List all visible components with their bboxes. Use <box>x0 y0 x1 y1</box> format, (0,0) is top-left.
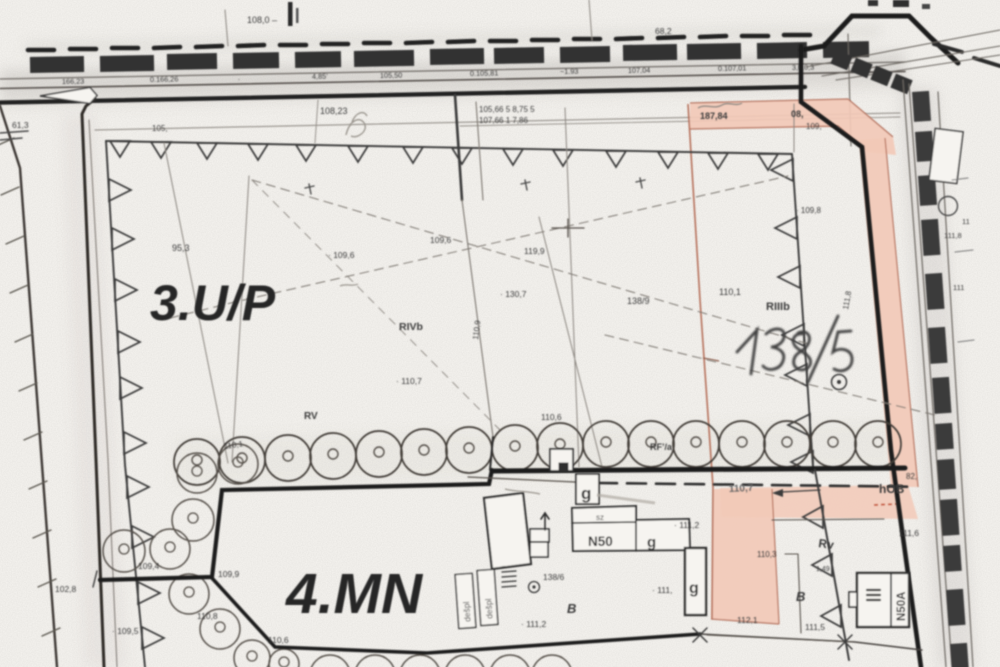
svg-text:109,6: 109,6 <box>430 235 452 245</box>
svg-text:109,9: 109,9 <box>218 569 240 579</box>
svg-text:N50: N50 <box>588 534 613 549</box>
svg-text:105,66 5 8,75 5: 105,66 5 8,75 5 <box>479 105 535 114</box>
svg-text:111,5: 111,5 <box>805 622 825 632</box>
svg-text:111: 111 <box>953 283 964 292</box>
svg-text:Rv: Rv <box>818 536 835 552</box>
svg-text:4.MN: 4.MN <box>285 562 424 626</box>
svg-text:110,1: 110,1 <box>719 287 741 297</box>
svg-text:· 110,7: · 110,7 <box>396 376 422 386</box>
svg-text:61,3: 61,3 <box>12 120 29 130</box>
svg-text:· 111,: · 111, <box>652 585 672 595</box>
svg-text:68,2: 68,2 <box>655 26 672 36</box>
svg-text:110,7: 110,7 <box>729 483 754 495</box>
svg-text:0.166,26: 0.166,26 <box>150 74 179 84</box>
svg-text:187,84: 187,84 <box>700 111 728 121</box>
svg-text:110,8: 110,8 <box>197 611 218 621</box>
svg-text:· 130,7: · 130,7 <box>500 289 527 299</box>
svg-text:0.105,81: 0.105,81 <box>470 68 499 78</box>
svg-text:11: 11 <box>962 217 970 226</box>
svg-text:.: . <box>238 73 240 82</box>
svg-text:3.U/P: 3.U/P <box>150 275 276 331</box>
svg-text:· 109,6: · 109,6 <box>328 250 355 260</box>
svg-text:hOB: hOB <box>879 482 905 496</box>
svg-text:112,1: 112,1 <box>737 615 758 625</box>
svg-text:dešpl: dešpl <box>461 601 472 622</box>
svg-text:82,: 82, <box>906 472 917 481</box>
svg-text:RF’/a: RF’/a <box>650 442 673 452</box>
svg-text:1,49: 1,49 <box>816 566 830 573</box>
svg-text:105,50: 105,50 <box>380 71 402 80</box>
svg-text:· 111,2: · 111,2 <box>674 520 699 530</box>
svg-text:119,9: 119,9 <box>524 246 545 256</box>
svg-text:110,6: 110,6 <box>541 412 562 422</box>
svg-text:B: B <box>567 601 576 616</box>
svg-text:08,: 08, <box>791 109 804 119</box>
svg-text:105,: 105, <box>152 124 168 133</box>
svg-text:95,3: 95,3 <box>172 243 190 253</box>
svg-text:RIIIb: RIIIb <box>766 301 790 313</box>
svg-text:138/9: 138/9 <box>627 296 650 306</box>
svg-text:111,6: 111,6 <box>899 528 919 538</box>
svg-text:108,0 –: 108,0 – <box>247 15 277 25</box>
svg-text:sz: sz <box>596 513 604 522</box>
svg-text:138/6: 138/6 <box>543 572 565 582</box>
svg-text:g: g <box>647 534 656 551</box>
svg-text:g: g <box>581 484 591 503</box>
svg-text:0.107,01: 0.107,01 <box>718 63 747 73</box>
svg-text:~1.93: ~1.93 <box>560 67 579 76</box>
svg-text:N50A: N50A <box>896 592 908 621</box>
svg-text:110,6: 110,6 <box>268 635 289 645</box>
svg-text:107,04: 107,04 <box>628 66 650 75</box>
svg-text:B: B <box>796 589 805 604</box>
svg-text:g: g <box>689 580 699 597</box>
svg-text:110,3: 110,3 <box>757 550 777 559</box>
svg-text:dešpl: dešpl <box>483 598 494 619</box>
svg-text:111,8: 111,8 <box>944 231 962 240</box>
svg-text:RIVb: RIVb <box>399 321 423 333</box>
svg-text:108,23: 108,23 <box>320 106 348 116</box>
svg-text:· 109,5: · 109,5 <box>112 626 139 636</box>
svg-text:166,23: 166,23 <box>62 77 84 86</box>
svg-text:· 109,8: · 109,8 <box>796 206 821 215</box>
svg-text:109,4: 109,4 <box>138 561 160 571</box>
svg-text:109,: 109, <box>806 122 822 131</box>
svg-text:4,85’: 4,85’ <box>312 72 328 81</box>
svg-text:102,8: 102,8 <box>55 584 77 594</box>
svg-text:107,66 1 7,86: 107,66 1 7,86 <box>479 116 528 125</box>
svg-text:RV: RV <box>304 411 318 422</box>
svg-text:· 111,2: · 111,2 <box>521 619 546 629</box>
